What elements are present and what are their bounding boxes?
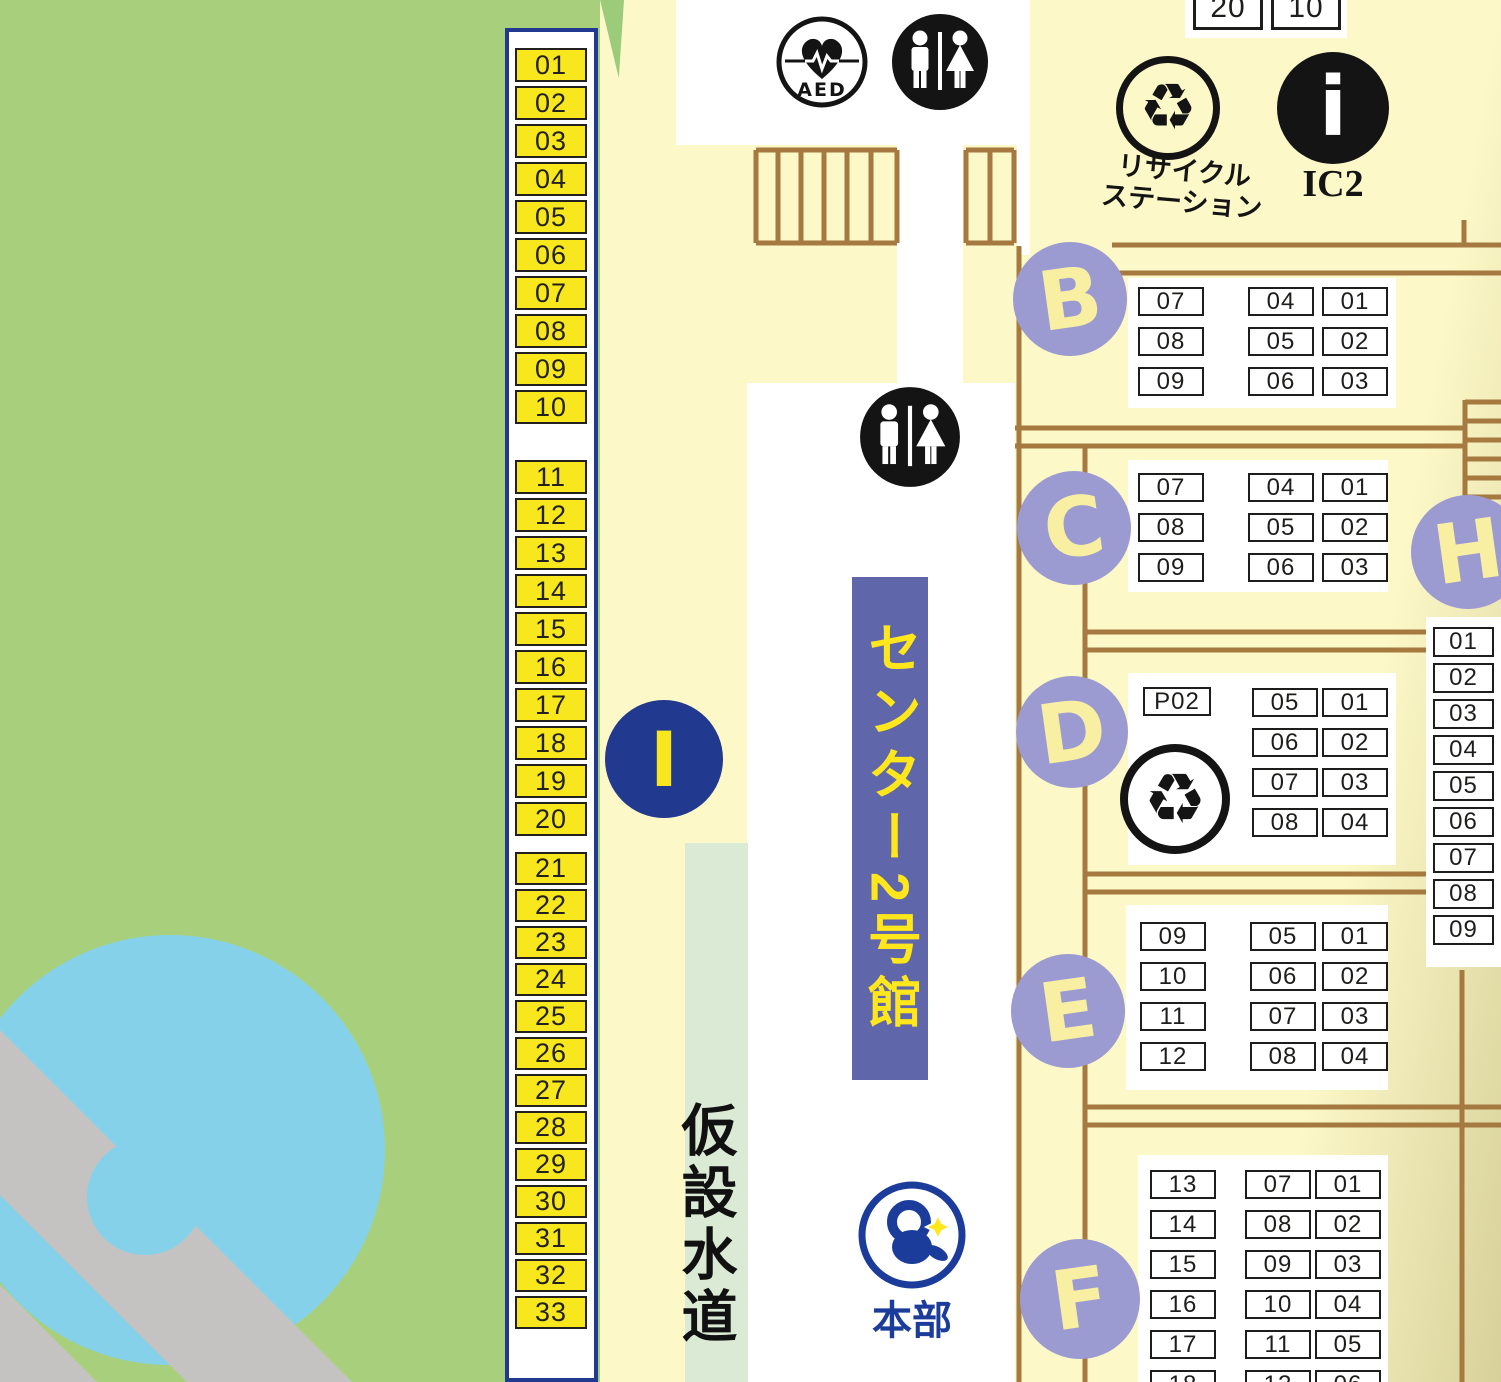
stall-box: 04 <box>515 162 587 196</box>
toilet-icon <box>858 385 962 494</box>
stall-box: 29 <box>515 1148 587 1181</box>
headquarters-mascot-icon <box>852 1175 972 1300</box>
section-marker-b: B <box>1013 242 1127 356</box>
stall-box: 25 <box>515 1000 587 1033</box>
stall-box: 14 <box>1150 1210 1216 1239</box>
stall-box: 02 <box>515 86 587 120</box>
stall-box: 03 <box>1322 553 1388 582</box>
building-banner-label: センター2号館 <box>851 620 930 1037</box>
stall-box: 32 <box>515 1259 587 1292</box>
recycle-glyph: ♻ <box>1139 76 1196 140</box>
stall-box: 11 <box>1245 1330 1311 1359</box>
stall-box: 03 <box>1322 367 1388 396</box>
stall-box: 08 <box>1250 1042 1316 1071</box>
stall-box: 01 <box>1322 473 1388 502</box>
section-letter: F <box>1046 1248 1115 1350</box>
stall-box: 02 <box>1322 513 1388 542</box>
stall-box: 06 <box>1248 553 1314 582</box>
info-icon: i <box>1277 52 1389 164</box>
stall-box: 08 <box>1252 808 1318 837</box>
stall-box: 08 <box>1138 513 1204 542</box>
stall-box: 02 <box>1322 728 1388 757</box>
stall-box: 06 <box>1250 962 1316 991</box>
stall-box: 18 <box>515 726 587 760</box>
stall-box: 03 <box>1322 768 1388 797</box>
stall-box: 11 <box>1140 1002 1206 1031</box>
stall-box: 01 <box>1322 688 1388 717</box>
stall-box: 09 <box>1245 1250 1311 1279</box>
stall-box: 12 <box>515 498 587 532</box>
stall-box: 33 <box>515 1296 587 1329</box>
section-letter: B <box>1032 248 1107 351</box>
stall-box: 17 <box>515 688 587 722</box>
stall-box: 12 <box>1245 1370 1311 1382</box>
stall-box: 06 <box>1252 728 1318 757</box>
stall-box: 03 <box>1433 699 1494 729</box>
stall-box: 24 <box>515 963 587 996</box>
section-marker-f: F <box>1020 1239 1140 1359</box>
stall-box: 11 <box>515 460 587 494</box>
stall-box: 07 <box>1245 1170 1311 1199</box>
stall-box: 08 <box>515 314 587 348</box>
section-letter: H <box>1427 500 1501 604</box>
stall-box: 05 <box>515 200 587 234</box>
section-e-panel: 09101112 05060708 01020304 <box>1126 905 1388 1090</box>
stall-box: 10 <box>1140 962 1206 991</box>
stall-box: 05 <box>1315 1330 1381 1359</box>
stall-box: 03 <box>1315 1250 1381 1279</box>
stall-box: 30 <box>515 1185 587 1218</box>
toilet-icon <box>890 12 990 117</box>
stall-box: 08 <box>1433 879 1494 909</box>
stall-box: 12 <box>1140 1042 1206 1071</box>
stall-box: 06 <box>1433 807 1494 837</box>
stall-box: 14 <box>515 574 587 608</box>
stall-box: 31 <box>515 1222 587 1255</box>
stall-box: 07 <box>1250 1002 1316 1031</box>
recycle-icon: ♻ <box>1116 56 1220 160</box>
section-letter: I <box>650 715 678 804</box>
stall-box: P02 <box>1143 687 1211 716</box>
headquarters-label: 本部 <box>852 1288 972 1346</box>
stall-box: 07 <box>1138 287 1204 316</box>
stall-box: 01 <box>1322 287 1388 316</box>
building-banner: センター2号館 <box>852 577 928 1080</box>
section-i-strip: 01020304050607080910 1112131415161718192… <box>505 28 598 1382</box>
aed-icon: AED <box>775 15 869 114</box>
stall-box: 04 <box>1248 473 1314 502</box>
stall-box: 15 <box>1150 1250 1216 1279</box>
stall-box: 03 <box>515 124 587 158</box>
stall-box: 09 <box>515 352 587 386</box>
recycle-glyph: ♻ <box>1144 764 1207 834</box>
section-c-panel: 070809 040506 010203 <box>1128 460 1388 592</box>
section-f-panel: 131415161718 070809101112 010203040506 <box>1138 1155 1388 1382</box>
section-marker-c: C <box>1017 471 1131 585</box>
stall-box: 27 <box>515 1074 587 1107</box>
stall-box: 05 <box>1248 327 1314 356</box>
stall-box: 09 <box>1138 367 1204 396</box>
stall-box: 16 <box>515 650 587 684</box>
section-letter: C <box>1038 477 1111 579</box>
stall-box: 09 <box>1433 915 1494 945</box>
stall-box: 02 <box>1433 663 1494 693</box>
recycle-icon: ♻ <box>1120 744 1230 854</box>
section-marker-e: E <box>1011 954 1125 1068</box>
stall-box: 21 <box>515 852 587 885</box>
stall-box: 15 <box>515 612 587 646</box>
stall-box: 01 <box>1315 1170 1381 1199</box>
stall-box: 22 <box>515 889 587 922</box>
stall-box: 05 <box>1252 688 1318 717</box>
stall-box: 01 <box>1433 627 1494 657</box>
aed-label: AED <box>797 79 846 101</box>
stall-box: 13 <box>1150 1170 1216 1199</box>
stall-box: 06 <box>1248 367 1314 396</box>
stall-box: 28 <box>515 1111 587 1144</box>
section-b-panel: 070809 040506 010203 <box>1128 278 1396 408</box>
section-h-panel: 010203040506070809 <box>1426 617 1501 967</box>
stall-box: 07 <box>1433 843 1494 873</box>
stall-box: 01 <box>515 48 587 82</box>
stall-box: 03 <box>1322 1002 1388 1031</box>
stall-box: 20 <box>1193 0 1263 30</box>
section-marker-d: D <box>1016 676 1128 788</box>
stall-box: 01 <box>1322 922 1388 951</box>
section-letter: D <box>1032 680 1113 784</box>
stall-box: 16 <box>1150 1290 1216 1319</box>
stall-box: 06 <box>515 238 587 272</box>
festival-map: 仮設水道 20 10 <box>0 0 1501 1382</box>
stall-box: 05 <box>1433 771 1494 801</box>
stall-box: 13 <box>515 536 587 570</box>
stall-box: 08 <box>1138 327 1204 356</box>
stall-box: 04 <box>1322 1042 1388 1071</box>
stall-box: 04 <box>1322 808 1388 837</box>
section-marker-i: I <box>605 700 723 818</box>
info-label: IC2 <box>1283 162 1383 206</box>
stall-box: 06 <box>1315 1370 1381 1382</box>
stall-box: 04 <box>1315 1290 1381 1319</box>
stall-box: 07 <box>515 276 587 310</box>
stall-box: 10 <box>1271 0 1341 30</box>
stall-box: 02 <box>1322 962 1388 991</box>
stall-box: 07 <box>1138 473 1204 502</box>
stall-box: 10 <box>1245 1290 1311 1319</box>
stall-box: 08 <box>1245 1210 1311 1239</box>
stall-box: 09 <box>1138 553 1204 582</box>
stall-box: 04 <box>1248 287 1314 316</box>
stall-box: 20 <box>515 802 587 836</box>
stall-box: 18 <box>1150 1370 1216 1382</box>
top-counter-panel: 20 10 <box>1185 0 1347 38</box>
stall-box: 02 <box>1322 327 1388 356</box>
stall-box: 19 <box>515 764 587 798</box>
stall-box: 04 <box>1433 735 1494 765</box>
stall-box: 09 <box>1140 922 1206 951</box>
stall-box: 05 <box>1250 922 1316 951</box>
stall-box: 26 <box>515 1037 587 1070</box>
stall-box: 10 <box>515 390 587 424</box>
section-letter: E <box>1034 960 1103 1062</box>
stall-box: 17 <box>1150 1330 1216 1359</box>
stall-box: 07 <box>1252 768 1318 797</box>
stall-box: 05 <box>1248 513 1314 542</box>
stall-box: 23 <box>515 926 587 959</box>
info-glyph: i <box>1319 67 1347 149</box>
stall-box: 02 <box>1315 1210 1381 1239</box>
